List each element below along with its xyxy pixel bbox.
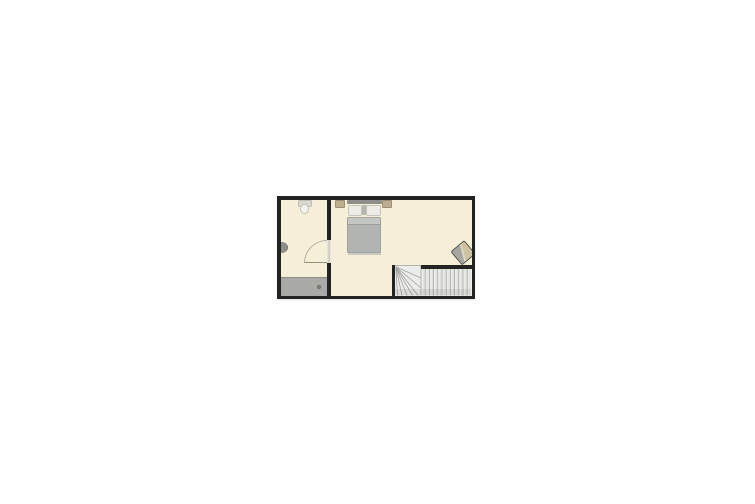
double-bed bbox=[347, 200, 382, 255]
wall-top bbox=[277, 196, 475, 200]
door-leaf bbox=[328, 240, 330, 263]
wall-stairs-left bbox=[392, 265, 396, 296]
pillow-left bbox=[348, 205, 363, 217]
wall-bathroom-divider-lower bbox=[327, 263, 331, 296]
pillow-right bbox=[366, 205, 381, 217]
nightstand-right bbox=[382, 200, 392, 208]
blanket-fold bbox=[348, 218, 380, 225]
bed-footboard bbox=[348, 253, 381, 255]
wall-bathroom-divider-upper bbox=[327, 199, 331, 240]
wall-stairs-top bbox=[421, 265, 475, 269]
wall-right bbox=[472, 196, 476, 299]
floor-plan bbox=[277, 196, 475, 299]
bed-blanket bbox=[347, 217, 381, 253]
bed-headboard bbox=[347, 200, 382, 205]
wall-left bbox=[277, 196, 281, 299]
wall-bottom bbox=[277, 296, 475, 300]
nightstand-left bbox=[335, 200, 345, 208]
staircase-entry-edge bbox=[395, 265, 421, 266]
room-bedroom bbox=[277, 196, 475, 299]
